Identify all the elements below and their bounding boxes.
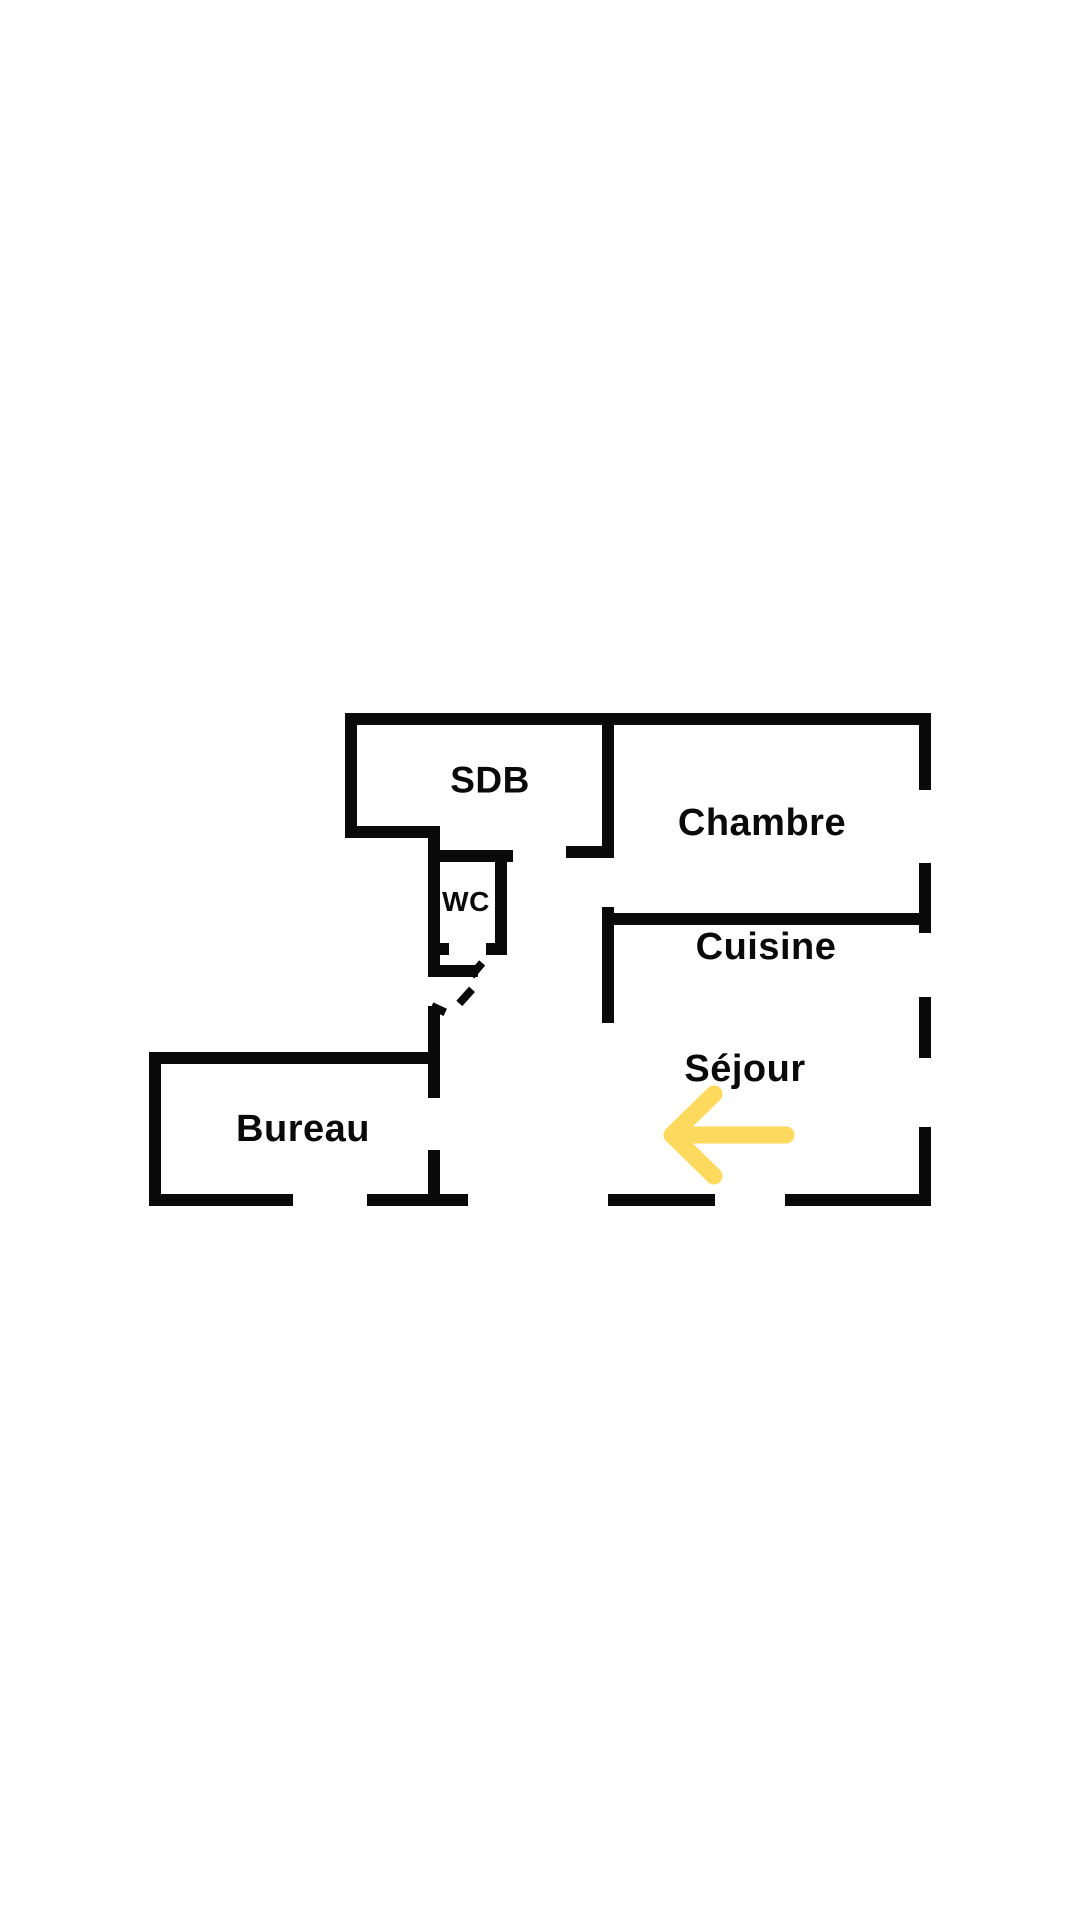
floor-plan-canvas: SDB Chambre WC Cuisine Séjour Bureau: [0, 0, 1080, 1920]
wall-segment: [919, 863, 931, 933]
wall-segment: [919, 997, 931, 1058]
room-label-wc: WC: [442, 888, 490, 916]
wall-segment: [428, 826, 440, 977]
wall-segment: [345, 713, 931, 725]
door-swing-dash: [456, 987, 475, 1006]
left-arrow-icon: [672, 1094, 786, 1176]
room-label-bureau: Bureau: [236, 1110, 370, 1148]
wall-segment: [785, 1194, 931, 1206]
wall-segment: [495, 850, 507, 955]
wall-segment: [149, 1194, 293, 1206]
room-label-cuisine: Cuisine: [696, 928, 837, 966]
wall-segment: [608, 1194, 715, 1206]
wall-segment: [345, 713, 357, 838]
wall-segment: [919, 713, 931, 790]
wall-segment: [367, 1194, 468, 1206]
wall-segment: [602, 713, 614, 858]
floor-plan-drawing: [0, 0, 1080, 1920]
wall-segment: [440, 943, 449, 955]
wall-segment: [149, 1052, 440, 1064]
wall-segment: [486, 943, 507, 955]
room-label-sdb: SDB: [450, 762, 530, 799]
room-label-chambre: Chambre: [678, 804, 846, 842]
wall-segment: [566, 846, 614, 858]
wall-segment: [149, 1052, 161, 1206]
room-label-sejour: Séjour: [684, 1050, 805, 1088]
wall-segment: [428, 1006, 440, 1098]
wall-segment: [602, 913, 931, 925]
wall-segment: [345, 826, 439, 838]
